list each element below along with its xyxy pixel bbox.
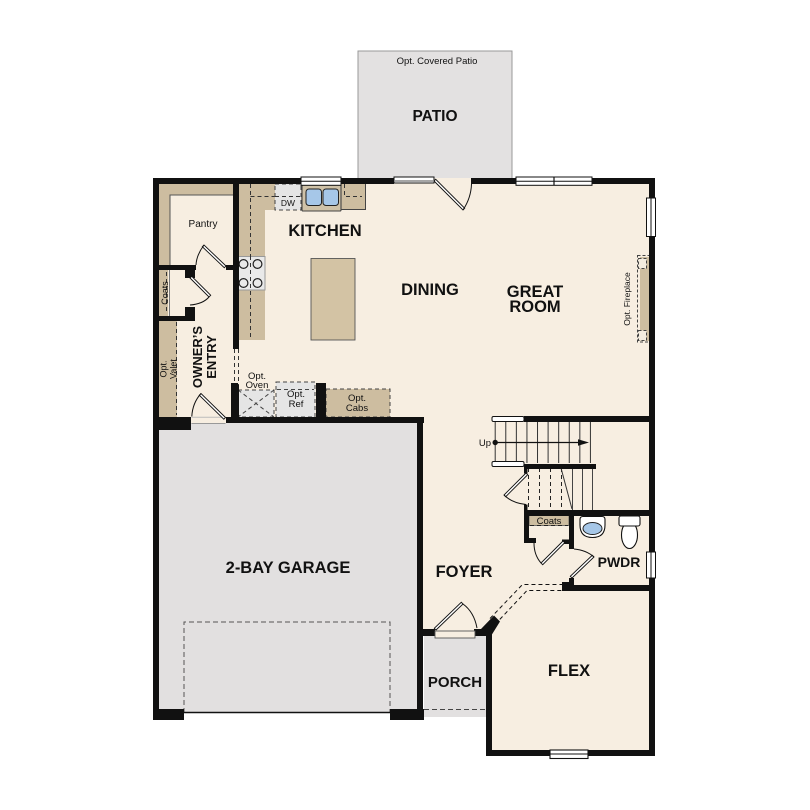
svg-text:Opt. Covered Patio: Opt. Covered Patio [397, 56, 478, 67]
svg-text:Coats: Coats [537, 516, 562, 527]
svg-text:Opt.Valet: Opt.Valet [159, 359, 179, 379]
svg-text:FOYER: FOYER [436, 563, 493, 581]
svg-text:DW: DW [281, 198, 295, 208]
svg-text:FLEX: FLEX [548, 662, 590, 680]
svg-text:Ref: Ref [289, 399, 304, 410]
svg-text:Opt. Fireplace: Opt. Fireplace [622, 272, 632, 326]
svg-text:PATIO: PATIO [412, 108, 457, 125]
svg-text:Pantry: Pantry [189, 219, 218, 230]
svg-text:ROOM: ROOM [509, 298, 560, 316]
svg-text:Coats: Coats [160, 281, 170, 305]
svg-text:DINING: DINING [401, 281, 459, 299]
svg-text:KITCHEN: KITCHEN [288, 222, 361, 240]
svg-text:Oven: Oven [246, 380, 269, 391]
svg-text:Cabs: Cabs [346, 403, 368, 414]
svg-text:PORCH: PORCH [428, 674, 482, 691]
svg-text:2-BAY GARAGE: 2-BAY GARAGE [226, 559, 351, 577]
svg-text:PWDR: PWDR [598, 554, 641, 570]
svg-text:Up: Up [479, 438, 491, 449]
